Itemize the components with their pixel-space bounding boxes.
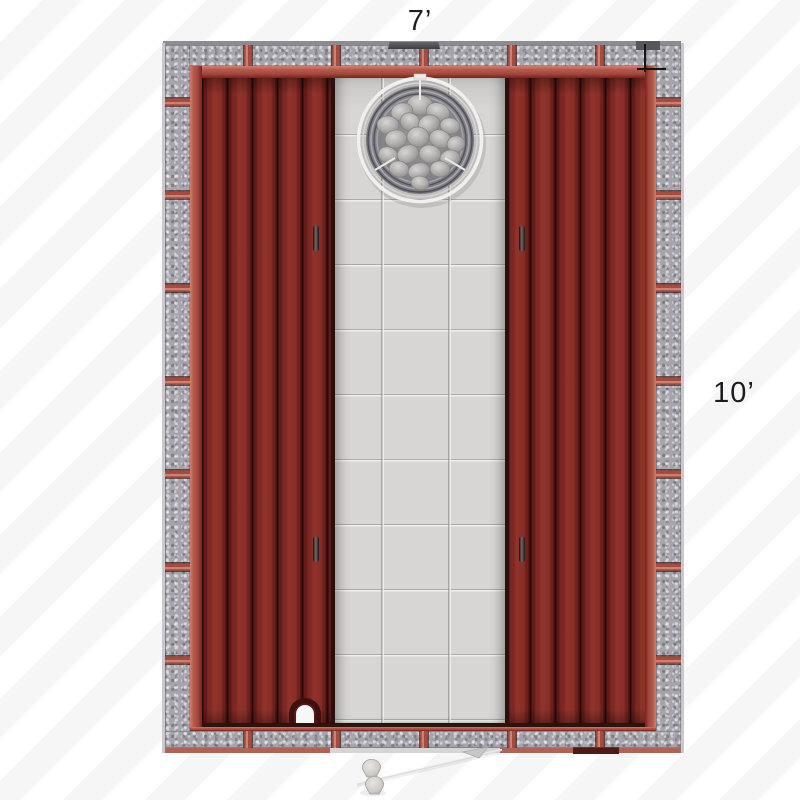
glass-door-open (330, 740, 520, 800)
heater-top-view (352, 71, 488, 211)
outer-edge-right (681, 43, 684, 753)
corner-vent-block (636, 41, 660, 50)
right-bench (505, 78, 645, 723)
bench-joint-clip (519, 226, 525, 251)
left-bench (202, 78, 335, 723)
wall-left-stone (165, 45, 190, 748)
bench-joint-clip (313, 537, 319, 562)
arch-vent-icon (294, 703, 316, 723)
wall-left-trim (190, 66, 202, 727)
bench-joint-clip (313, 226, 319, 251)
left-bench-edge (331, 78, 335, 723)
wall-bottom-trim (190, 727, 656, 731)
heater-mount-bracket (414, 74, 426, 79)
wall-right-trim (645, 66, 656, 727)
door-threshold-strip (573, 747, 619, 754)
bench-joint-clip (519, 537, 525, 562)
corner-mark-horizontal (637, 68, 666, 70)
sauna-plan (0, 0, 800, 800)
sauna-plan-scene: 7’ 10’ (0, 0, 800, 800)
door-handle-knobs (363, 759, 384, 794)
wall-right-stone (656, 45, 681, 748)
right-bench-edge (505, 78, 509, 723)
roof-vent-icon (388, 42, 440, 49)
